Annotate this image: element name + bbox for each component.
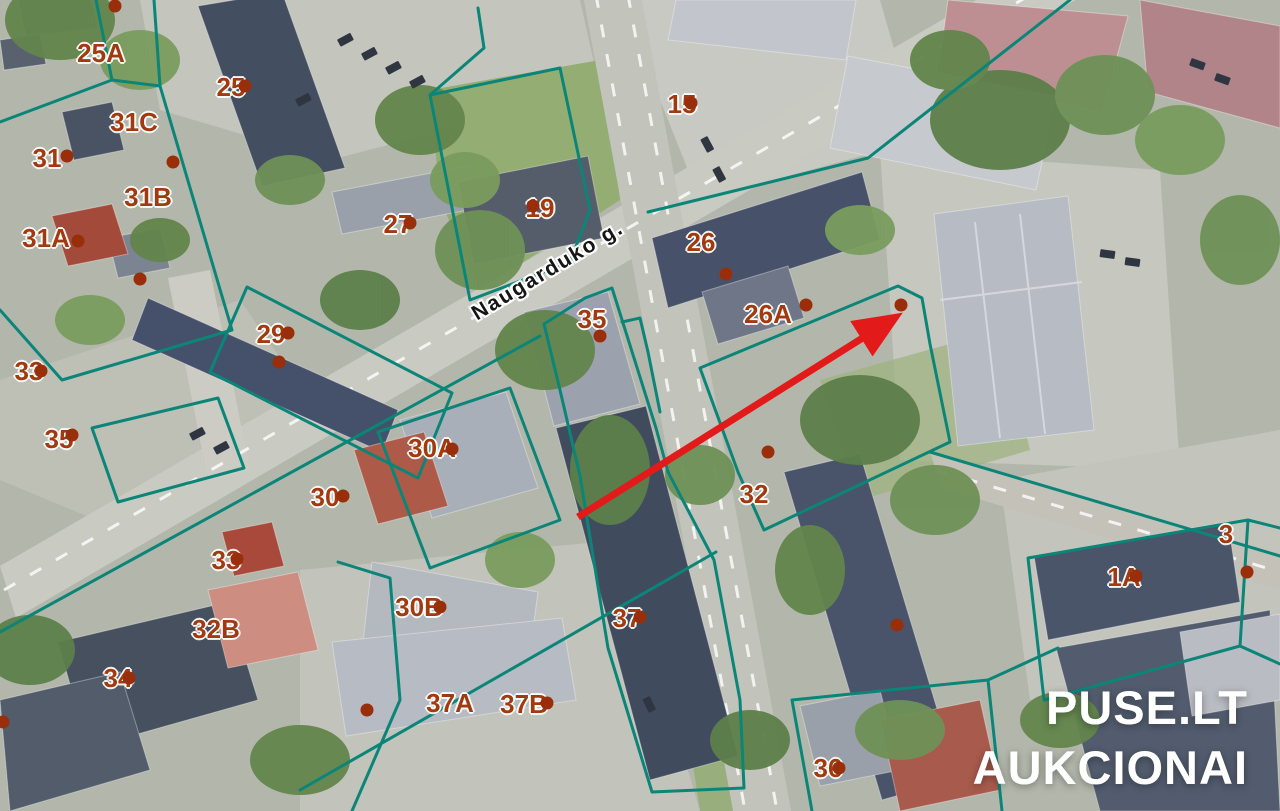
- parcel-label-25A: 25A: [77, 40, 125, 66]
- aerial-map: 25A2531C3131B31A1519272626A3529333530A30…: [0, 0, 1280, 811]
- parcel-center-dot: [720, 268, 733, 281]
- parcel-center-dot: [337, 490, 350, 503]
- parcel-label-3: 3: [1219, 521, 1233, 547]
- parcel-center-dot: [167, 156, 180, 169]
- parcel-center-dot: [1130, 570, 1143, 583]
- parcel-center-dot: [891, 619, 904, 632]
- parcel-center-dot: [35, 365, 48, 378]
- parcel-center-dot: [634, 611, 647, 624]
- parcel-center-dot: [541, 697, 554, 710]
- parcel-center-dot: [361, 704, 374, 717]
- parcel-label-31: 31: [33, 145, 62, 171]
- parcel-label-31C: 31C: [110, 109, 158, 135]
- parcel-label-32: 32: [740, 481, 769, 507]
- parcel-center-dot: [762, 446, 775, 459]
- parcel-label-31B: 31B: [124, 184, 172, 210]
- parcel-center-dot: [61, 150, 74, 163]
- parcel-label-37A: 37A: [426, 690, 474, 716]
- parcel-center-dot: [66, 429, 79, 442]
- parcel-label-30: 30: [311, 484, 340, 510]
- parcel-label-35: 35: [578, 306, 607, 332]
- parcel-center-dot: [527, 200, 540, 213]
- parcel-center-dot: [434, 601, 447, 614]
- parcel-label-32B: 32B: [192, 616, 240, 642]
- parcel-label-31A: 31A: [22, 225, 70, 251]
- watermark-brand: PUSE.LT: [1046, 684, 1248, 731]
- parcel-center-dot: [0, 716, 10, 729]
- watermark-subtitle: AUKCIONAI: [973, 744, 1248, 791]
- parcel-center-dot: [404, 217, 417, 230]
- parcel-center-dot: [895, 299, 908, 312]
- parcel-center-dot: [800, 299, 813, 312]
- parcel-center-dot: [446, 443, 459, 456]
- parcel-center-dot: [231, 553, 244, 566]
- parcel-center-dot: [685, 97, 698, 110]
- parcel-label-26: 26: [687, 229, 716, 255]
- parcel-center-dot: [833, 762, 846, 775]
- parcel-center-dot: [123, 672, 136, 685]
- parcel-label-26A: 26A: [744, 301, 792, 327]
- parcel-center-dot: [239, 80, 252, 93]
- parcel-center-dot: [134, 273, 147, 286]
- parcel-center-dot: [282, 327, 295, 340]
- parcel-center-dot: [72, 235, 85, 248]
- parcel-center-dot: [1241, 566, 1254, 579]
- parcel-center-dot: [109, 0, 122, 13]
- parcel-center-dot: [273, 356, 286, 369]
- parcel-center-dot: [594, 330, 607, 343]
